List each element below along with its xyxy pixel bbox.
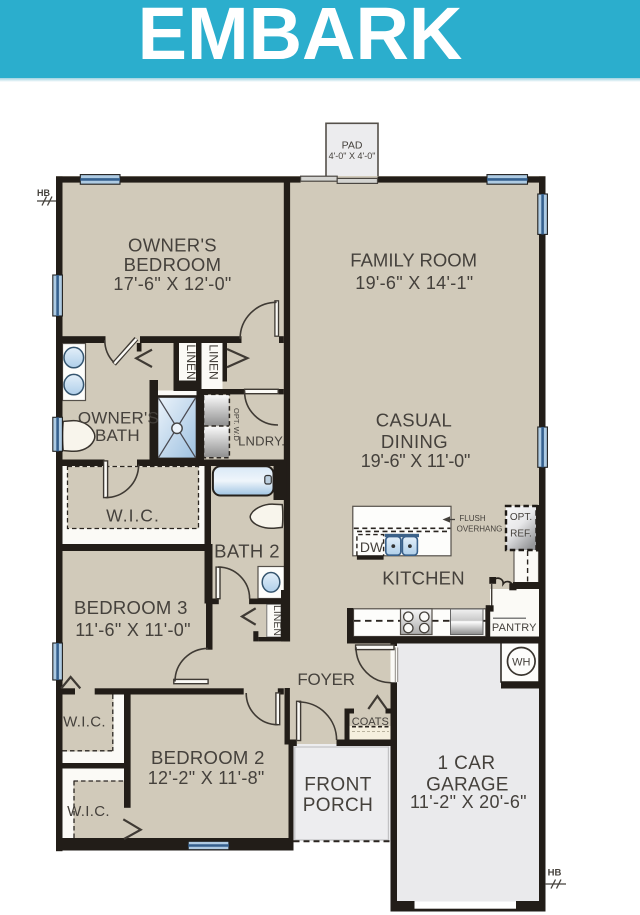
svg-text:FOYER: FOYER (297, 670, 355, 689)
svg-text:W.I.C.: W.I.C. (106, 506, 160, 526)
svg-text:BEDROOM 2: BEDROOM 2 (151, 747, 265, 768)
svg-text:FRONT: FRONT (304, 775, 371, 796)
svg-text:OVERHANG: OVERHANG (457, 525, 503, 534)
svg-text:11'-6" X 11'-0": 11'-6" X 11'-0" (75, 620, 191, 640)
svg-text:W.I.C.: W.I.C. (67, 803, 110, 820)
svg-text:LINEN: LINEN (184, 344, 198, 379)
svg-text:HB: HB (37, 188, 50, 198)
svg-text:DINING: DINING (381, 431, 448, 452)
svg-text:HB: HB (548, 868, 562, 879)
svg-text:19'-6" X 14'-1": 19'-6" X 14'-1" (355, 273, 473, 293)
svg-text:PAD: PAD (342, 140, 363, 152)
svg-text:PANTRY: PANTRY (492, 622, 537, 634)
svg-text:OPT.: OPT. (510, 512, 532, 523)
svg-text:11'-2" X 20'-6": 11'-2" X 20'-6" (410, 792, 527, 812)
svg-text:BEDROOM 3: BEDROOM 3 (74, 597, 188, 618)
svg-text:PORCH: PORCH (303, 795, 374, 816)
svg-text:17'-6" X 12'-0": 17'-6" X 12'-0" (113, 274, 231, 294)
svg-text:OWNER'S: OWNER'S (78, 409, 159, 428)
svg-text:12'-2" X 11'-8": 12'-2" X 11'-8" (148, 768, 265, 788)
svg-text:OPT. W.D: OPT. W.D (232, 408, 241, 442)
svg-text:W.I.C.: W.I.C. (63, 714, 106, 731)
svg-text:19'-6" X 11'-0": 19'-6" X 11'-0" (361, 451, 470, 471)
svg-text:OWNER'S: OWNER'S (128, 235, 217, 256)
svg-text:LINEN: LINEN (271, 605, 283, 636)
svg-text:DW: DW (360, 539, 384, 555)
svg-text:COATS: COATS (352, 716, 389, 728)
svg-text:LINEN: LINEN (206, 344, 220, 379)
svg-text:4'-0" X 4'-0": 4'-0" X 4'-0" (329, 151, 376, 161)
svg-text:BEDROOM: BEDROOM (124, 254, 222, 275)
svg-text:KITCHEN: KITCHEN (382, 568, 465, 589)
svg-text:WH: WH (512, 656, 530, 668)
svg-text:1 CAR: 1 CAR (438, 753, 496, 774)
svg-text:BATH: BATH (95, 426, 140, 445)
svg-text:REF.: REF. (510, 529, 532, 540)
svg-text:FLUSH: FLUSH (459, 514, 485, 523)
svg-text:BATH 2: BATH 2 (214, 541, 280, 562)
svg-text:FAMILY ROOM: FAMILY ROOM (350, 250, 477, 271)
svg-text:CASUAL: CASUAL (376, 410, 452, 431)
svg-text:LNDRY.: LNDRY. (238, 434, 285, 449)
